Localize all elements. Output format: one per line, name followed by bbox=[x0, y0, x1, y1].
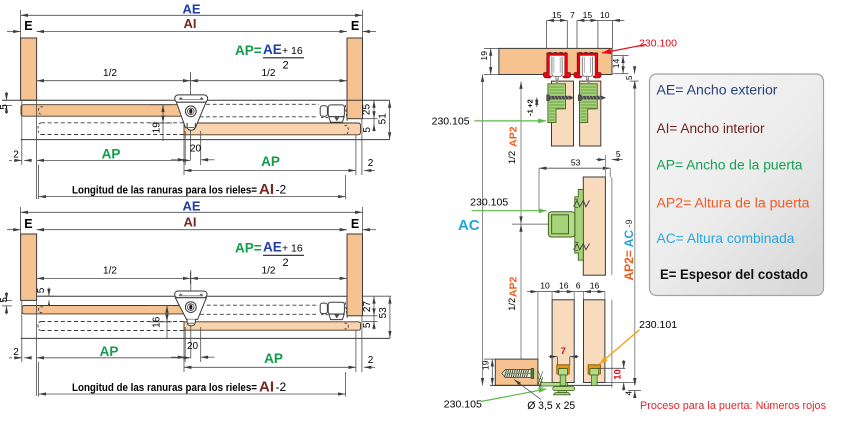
svg-text:230.105: 230.105 bbox=[470, 197, 508, 209]
svg-text:20: 20 bbox=[187, 341, 199, 352]
svg-text:6: 6 bbox=[576, 281, 581, 291]
svg-text:5: 5 bbox=[0, 297, 10, 303]
svg-text:AP2= AC -9: AP2= AC -9 bbox=[622, 219, 636, 280]
svg-text:25: 25 bbox=[362, 104, 373, 116]
svg-text:16: 16 bbox=[590, 281, 600, 291]
svg-text:19: 19 bbox=[481, 360, 491, 370]
svg-text:2: 2 bbox=[13, 347, 19, 358]
svg-text:2: 2 bbox=[282, 60, 288, 72]
svg-text:AE: AE bbox=[263, 42, 282, 57]
svg-text:Ø 3,5 x 25: Ø 3,5 x 25 bbox=[527, 400, 575, 412]
svg-text:AP2: AP2 bbox=[507, 126, 519, 147]
svg-text:7: 7 bbox=[561, 346, 566, 357]
svg-text:-2: -2 bbox=[276, 183, 287, 197]
svg-text:+2: +2 bbox=[526, 99, 535, 108]
svg-text:1/2: 1/2 bbox=[507, 298, 518, 311]
svg-text:16: 16 bbox=[152, 316, 163, 328]
svg-text:AE= Ancho exterior: AE= Ancho exterior bbox=[657, 83, 779, 98]
svg-text:AP: AP bbox=[102, 147, 121, 162]
svg-text:53: 53 bbox=[571, 158, 581, 168]
svg-text:Longitud de las ranuras para l: Longitud de las ranuras para los rieles= bbox=[72, 185, 257, 197]
svg-text:14: 14 bbox=[611, 59, 621, 69]
svg-text:E: E bbox=[24, 217, 32, 231]
svg-text:230.105: 230.105 bbox=[444, 398, 482, 410]
svg-text:19: 19 bbox=[479, 51, 489, 61]
svg-text:2: 2 bbox=[282, 257, 288, 269]
svg-text:5: 5 bbox=[616, 149, 621, 159]
svg-text:E: E bbox=[24, 19, 32, 33]
svg-text:1/2: 1/2 bbox=[103, 266, 117, 277]
svg-text:15: 15 bbox=[583, 10, 593, 20]
svg-text:E: E bbox=[351, 19, 359, 33]
svg-text:AP: AP bbox=[261, 154, 280, 169]
svg-text:10: 10 bbox=[612, 369, 623, 380]
svg-text:E= Espesor del costado: E= Espesor del costado bbox=[660, 267, 808, 282]
svg-text:AC= Altura combinada: AC= Altura combinada bbox=[657, 231, 795, 246]
svg-text:10: 10 bbox=[540, 281, 550, 291]
svg-text:15: 15 bbox=[552, 10, 562, 20]
svg-text:5: 5 bbox=[362, 127, 373, 133]
svg-text:16: 16 bbox=[559, 281, 569, 291]
svg-text:AP=: AP= bbox=[235, 43, 262, 58]
svg-text:51: 51 bbox=[377, 113, 388, 125]
svg-text:Longitud de las ranuras para l: Longitud de las ranuras para los rieles= bbox=[72, 382, 257, 394]
svg-text:230.105: 230.105 bbox=[432, 116, 470, 128]
svg-text:AE: AE bbox=[182, 199, 200, 214]
svg-text:2: 2 bbox=[13, 150, 19, 161]
svg-text:Proceso para la puerta: Número: Proceso para la puerta: Números rojos bbox=[640, 400, 826, 412]
svg-text:+ 16: + 16 bbox=[282, 45, 303, 57]
svg-text:-1: -1 bbox=[526, 109, 535, 116]
svg-text:1/2: 1/2 bbox=[507, 151, 518, 164]
svg-text:AI= Ancho interior: AI= Ancho interior bbox=[657, 121, 765, 136]
svg-text:53: 53 bbox=[378, 307, 389, 319]
svg-text:5: 5 bbox=[36, 287, 47, 293]
svg-text:AP=: AP= bbox=[235, 241, 262, 256]
svg-text:5: 5 bbox=[625, 75, 634, 80]
svg-text:-2: -2 bbox=[276, 380, 287, 394]
svg-text:230.100: 230.100 bbox=[639, 38, 677, 50]
svg-text:AI: AI bbox=[184, 214, 197, 229]
svg-text:AP: AP bbox=[100, 344, 119, 359]
svg-text:20: 20 bbox=[190, 144, 202, 155]
svg-text:1/2: 1/2 bbox=[262, 266, 276, 277]
svg-text:5: 5 bbox=[362, 322, 373, 328]
svg-text:AI: AI bbox=[259, 181, 274, 198]
svg-text:+ 16: + 16 bbox=[282, 243, 303, 255]
svg-text:AI: AI bbox=[259, 378, 274, 395]
svg-text:AE: AE bbox=[263, 240, 282, 255]
svg-text:7: 7 bbox=[570, 10, 575, 20]
svg-text:E: E bbox=[351, 217, 359, 231]
svg-text:AP2: AP2 bbox=[507, 277, 519, 298]
svg-text:230.101: 230.101 bbox=[639, 319, 677, 331]
svg-text:4: 4 bbox=[624, 390, 633, 395]
svg-text:AP= Ancho de la puerta: AP= Ancho de la puerta bbox=[657, 158, 804, 173]
svg-text:AE: AE bbox=[182, 2, 200, 17]
svg-text:AP2= Altura de la puerta: AP2= Altura de la puerta bbox=[657, 196, 811, 211]
svg-text:AI: AI bbox=[184, 16, 197, 31]
svg-text:19: 19 bbox=[152, 122, 163, 134]
svg-text:1/2: 1/2 bbox=[103, 68, 117, 79]
svg-text:2: 2 bbox=[368, 355, 374, 366]
svg-text:AP: AP bbox=[264, 351, 283, 366]
svg-text:AC: AC bbox=[458, 217, 480, 234]
svg-text:27: 27 bbox=[362, 301, 373, 313]
svg-text:1/2: 1/2 bbox=[262, 68, 276, 79]
svg-text:2: 2 bbox=[368, 158, 374, 169]
svg-text:10: 10 bbox=[600, 10, 610, 20]
svg-text:5: 5 bbox=[0, 104, 10, 110]
